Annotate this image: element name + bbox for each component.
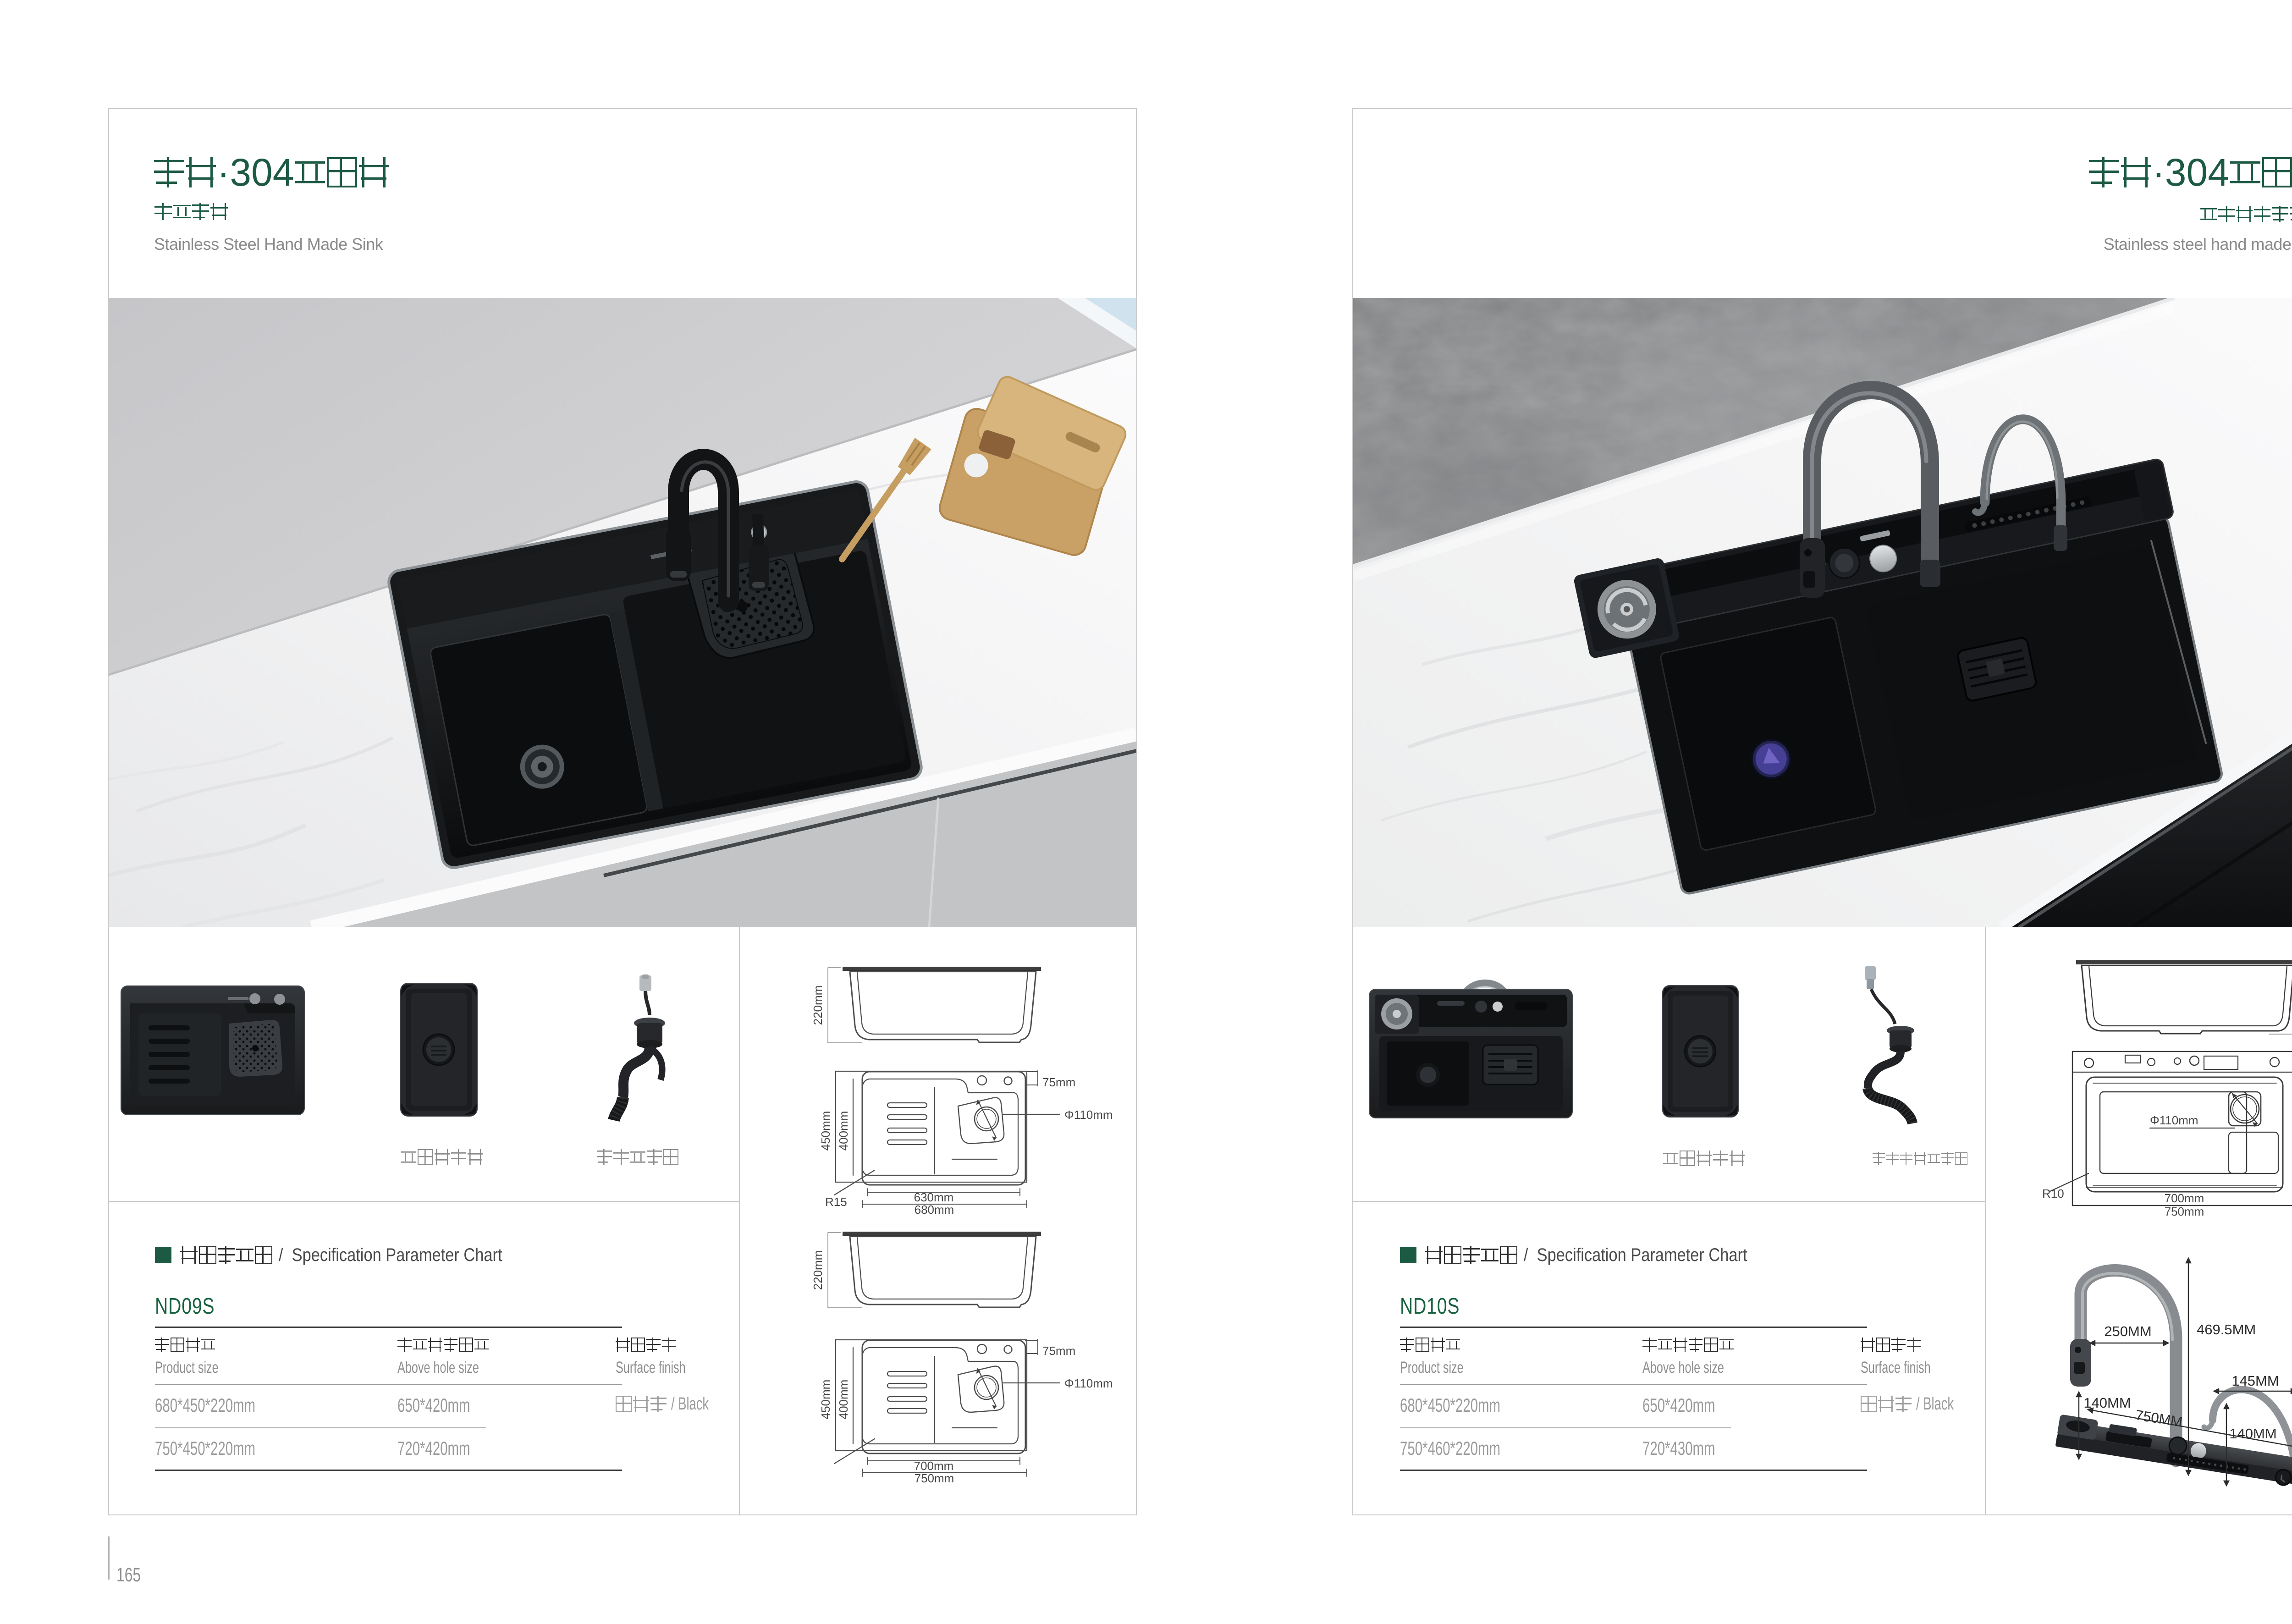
svg-text:75mm: 75mm (1042, 1075, 1075, 1089)
svg-text:Φ110mm: Φ110mm (1064, 1108, 1113, 1122)
svg-text:750mm: 750mm (915, 1471, 954, 1485)
svg-text:630mm: 630mm (914, 1190, 954, 1204)
svg-text:469.5MM: 469.5MM (2197, 1321, 2256, 1338)
svg-text:450mm: 450mm (819, 1380, 832, 1420)
svg-text:R15: R15 (825, 1195, 847, 1209)
svg-text:700mm: 700mm (914, 1459, 954, 1473)
svg-text:75mm: 75mm (1042, 1344, 1075, 1358)
svg-text:Φ110mm: Φ110mm (1064, 1376, 1113, 1390)
svg-text:145MM: 145MM (2231, 1373, 2279, 1389)
svg-text:680mm: 680mm (915, 1203, 954, 1217)
svg-text:750mm: 750mm (2165, 1205, 2204, 1218)
svg-text:140MM: 140MM (2229, 1426, 2276, 1442)
svg-text:220mm: 220mm (811, 1250, 825, 1290)
svg-text:400mm: 400mm (837, 1111, 850, 1151)
svg-text:Φ110mm: Φ110mm (2150, 1113, 2198, 1127)
svg-text:R10: R10 (2042, 1187, 2064, 1200)
svg-text:400mm: 400mm (837, 1380, 850, 1420)
svg-text:140MM: 140MM (2083, 1395, 2131, 1411)
svg-text:250MM: 250MM (2104, 1323, 2151, 1339)
svg-text:700mm: 700mm (2165, 1191, 2204, 1205)
svg-text:450mm: 450mm (819, 1111, 832, 1151)
svg-text:220mm: 220mm (811, 985, 825, 1025)
